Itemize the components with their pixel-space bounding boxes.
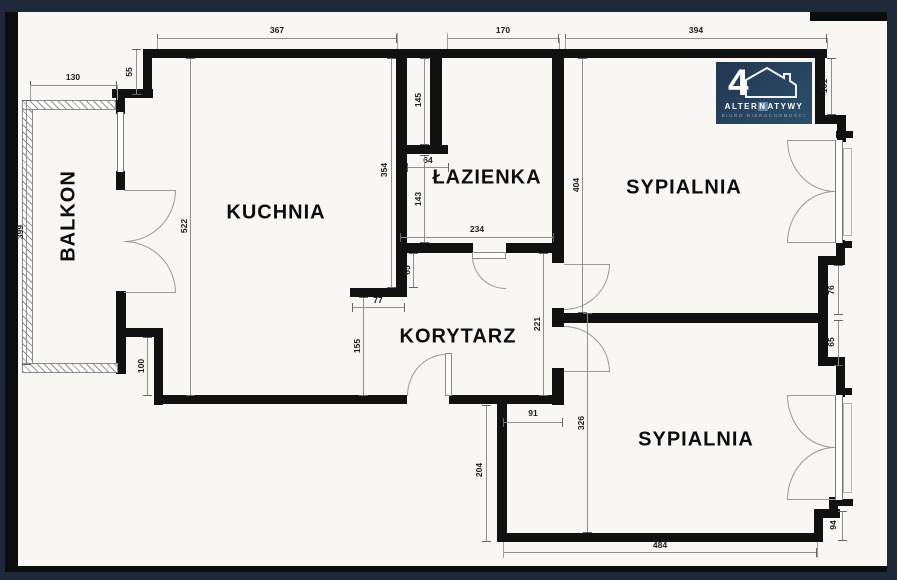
wall-balcony-jamb-b	[116, 171, 125, 190]
wall-right-pier	[818, 256, 828, 366]
logo-tagline: BIURO NIERUCHOMOŚCI	[716, 114, 812, 119]
dim-line-kitchen-step	[147, 337, 148, 396]
balcony-wall-top	[22, 100, 116, 110]
dim-line-bath-stub-gap	[413, 253, 414, 288]
room-label-balkon: BALKON	[58, 170, 81, 262]
entrance-door-leaf	[445, 353, 452, 396]
dim-line-bath-upper-left	[424, 58, 425, 145]
photo-edge-top-right	[810, 12, 887, 21]
room-label-kuchnia: KUCHNIA	[226, 202, 325, 225]
dim-label-kitchen-right: 354	[380, 163, 389, 177]
dim-label-stub: 77	[373, 296, 382, 305]
dim-line-corridor-right	[543, 253, 544, 396]
dim-label-bedroom1-right: 101	[820, 79, 829, 93]
wall-bathroom-left	[430, 49, 442, 153]
bedroom1-window-sill	[843, 148, 852, 236]
extension-line	[817, 542, 818, 558]
extension-line	[559, 38, 560, 49]
dim-line-balcony-top	[30, 85, 117, 86]
logo-name-post: ATYWY	[768, 102, 804, 111]
wall-corridor-right-lower	[552, 368, 564, 405]
dim-line-top-bathroom	[447, 38, 559, 39]
dim-line-bedroom2-height	[587, 313, 588, 533]
bedroom1-window	[835, 140, 843, 243]
dim-label-bedroom1-height: 404	[572, 178, 581, 192]
dim-label-bath-upper-left: 145	[414, 93, 423, 107]
wall-kitchen-right	[396, 49, 407, 297]
dim-label-bedroom2-width: 484	[653, 541, 667, 550]
bedroom2-window-sill	[843, 403, 852, 493]
dim-label-top-bedroom: 394	[689, 26, 703, 35]
dim-label-pier-upper: 76	[827, 285, 836, 294]
dim-label-corner-step: 94	[829, 520, 838, 529]
dim-line-bedroom1-height	[582, 58, 583, 313]
dim-label-top-kitchen: 367	[270, 26, 284, 35]
dim-line-stub	[352, 307, 405, 308]
wall-sill-stub-win1-top	[836, 131, 853, 138]
dim-label-corridor-left: 155	[353, 339, 362, 353]
room-label-sypialnia1: SYPIALNIA	[626, 177, 742, 200]
dim-line-pier-lower	[838, 320, 839, 366]
dim-label-balcony-left: 399	[16, 225, 25, 239]
wall-kitchen-step-h	[126, 328, 163, 337]
floorplan-screenshot: 367 170 394 130 64 234 77 91 484 55 399 …	[0, 0, 897, 580]
dim-line-kitchen-left	[190, 58, 191, 396]
extension-line	[397, 33, 398, 49]
wall-sill-stub-win2-bottom	[836, 499, 853, 506]
extension-line	[157, 38, 158, 49]
extension-line	[117, 85, 118, 100]
wall-bathroom-bottom-left	[407, 243, 473, 253]
logo-number: 4	[728, 64, 749, 101]
dim-line-kitchen-right	[391, 58, 392, 288]
room-label-korytarz: KORYTARZ	[400, 326, 517, 349]
house-icon	[742, 65, 800, 99]
wall-bedroom2-left	[497, 395, 507, 542]
dim-line-bedroom2-width	[503, 552, 817, 553]
dim-label-bath-stub-gap: 65	[403, 265, 412, 274]
dim-label-bath-lower-left: 143	[414, 192, 423, 206]
dim-line-pier-upper	[838, 265, 839, 315]
dim-line-bedroom1-right	[831, 58, 832, 115]
wall-balcony-jamb-c	[116, 291, 126, 374]
dim-label-kitchen-step: 100	[137, 359, 146, 373]
logo-name: ALTERNATYWY	[716, 103, 812, 111]
room-label-lazienka: ŁAZIENKA	[432, 167, 541, 190]
dim-label-step-left: 55	[125, 67, 134, 76]
dim-label-bedroom2-height: 326	[577, 416, 586, 430]
dim-label-corridor-right: 221	[533, 317, 542, 331]
extension-line	[503, 542, 504, 558]
extension-line	[565, 38, 566, 49]
dim-label-kitchen-left: 522	[180, 219, 189, 233]
photo-edge-left	[5, 12, 18, 566]
wall-corridor-right-upper	[552, 49, 564, 263]
dim-label-pier-lower: 65	[827, 337, 836, 346]
wall-bedroom-divider	[562, 313, 820, 323]
dim-line-top-kitchen	[157, 38, 397, 39]
wall-bathroom-bottom-right	[506, 243, 553, 253]
dim-label-below-corridor: 204	[475, 463, 484, 477]
logo-name-boxed: N	[758, 102, 767, 111]
dim-line-entry-wall	[503, 422, 563, 423]
balcony-window	[117, 112, 124, 172]
dim-line-step-left	[136, 49, 137, 95]
wall-corridor-right-stub	[552, 308, 564, 327]
dim-label-balcony-top: 130	[66, 73, 80, 82]
dim-line-balcony-left	[26, 100, 27, 365]
dim-label-top-bathroom: 170	[496, 26, 510, 35]
dim-line-corner-step	[842, 511, 843, 541]
bedroom2-window	[835, 395, 843, 500]
dim-line-top-bedroom	[565, 38, 827, 39]
dim-line-corridor-left	[363, 297, 364, 396]
dim-line-below-corridor	[486, 405, 487, 542]
extension-line	[447, 33, 448, 49]
agency-logo: 4 ALTERNATYWY BIURO NIERUCHOMOŚCI	[716, 62, 812, 124]
extension-line	[30, 85, 31, 100]
room-label-sypialnia2: SYPIALNIA	[638, 429, 754, 452]
extension-line	[827, 38, 828, 49]
wall-duct-h	[405, 145, 448, 154]
balcony-wall-bottom	[22, 363, 118, 373]
dim-label-bath-width: 234	[470, 225, 484, 234]
wall-top	[152, 49, 827, 58]
wall-kitchen-bottom	[154, 395, 407, 404]
photo-edge-bottom	[5, 566, 887, 572]
logo-name-pre: ALTER	[725, 102, 759, 111]
dim-label-entry-wall: 91	[528, 409, 537, 418]
dim-line-bath-lower-left	[424, 155, 425, 243]
